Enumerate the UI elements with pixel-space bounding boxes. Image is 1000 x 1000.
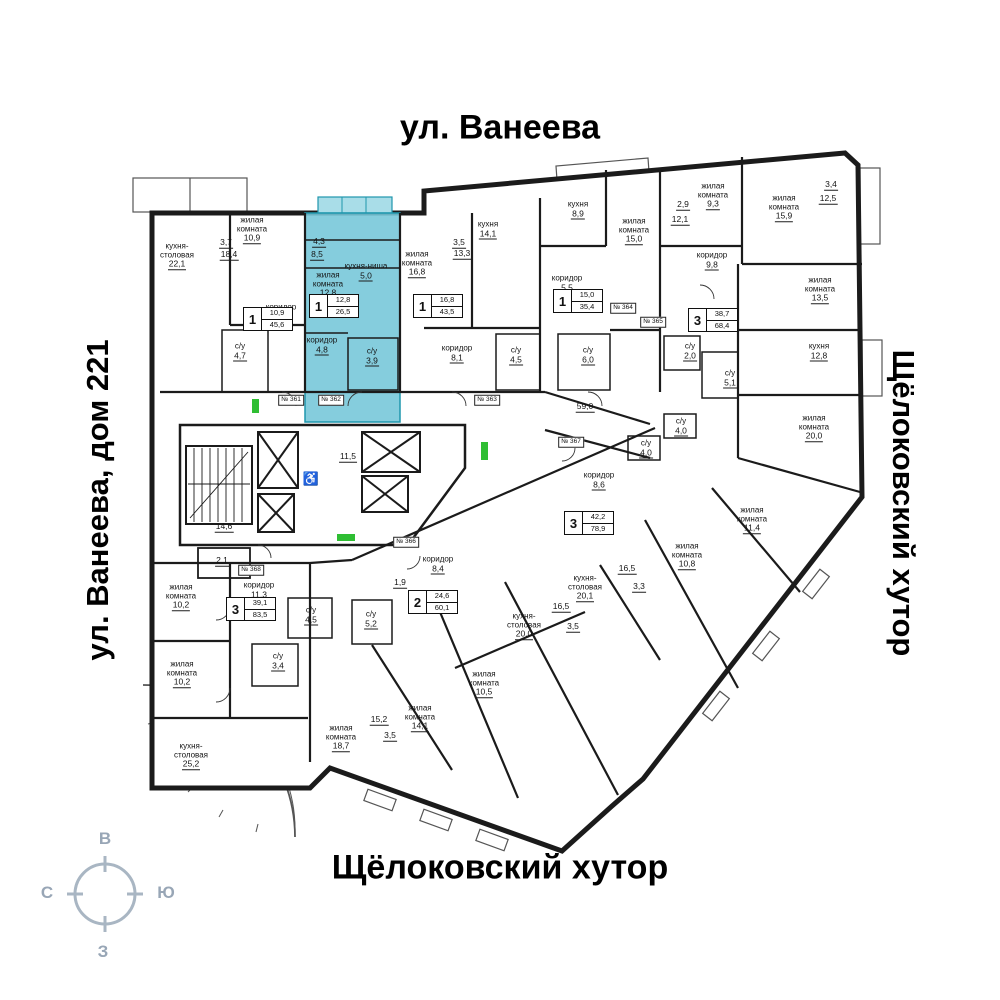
room-area: 18,4 [220,250,239,261]
room-area: 8,6 [592,480,606,491]
room-label: жилая комната16,8 [402,250,432,278]
rooms-count: 3 [227,598,245,620]
apartment-number-tag: № 362 [318,395,344,406]
room-label: 12,5 [819,194,838,205]
apartment-number-tag: № 363 [474,395,500,406]
room-label: кухня- столовая22,1 [160,242,194,270]
room-name: кухня- столовая [568,574,602,591]
room-name: жилая комната [737,506,767,523]
compass-west: З [98,942,109,962]
living-area: 42,2 [583,512,613,524]
room-area: 11,5 [339,452,357,463]
room-area: 4,0 [674,426,688,437]
room-label: с/у3,4 [271,653,285,672]
room-area: 11,4 [743,523,761,534]
total-area: 68,4 [707,321,737,332]
room-area: 8,5 [310,250,324,261]
total-area: 60,1 [427,603,457,614]
street-label-top: ул. Ванеева [400,109,600,148]
room-label: 3,5 [383,731,397,742]
room-label: коридор8,1 [442,345,473,364]
room-label: 18,4 [220,250,239,261]
room-label: 12,1 [671,215,690,226]
room-label: с/у2,0 [683,343,697,362]
room-name: кухня- столовая [507,612,541,629]
apartment-badge[interactable]: 115,035,4 [553,289,603,313]
room-name: кухня- столовая [174,742,208,759]
room-label: жилая комната11,4 [737,506,767,534]
living-area: 39,1 [245,598,275,610]
apartment-badge[interactable]: 338,768,4 [688,308,738,332]
room-area: 13,3 [453,249,472,260]
room-label: жилая комната13,5 [805,276,835,304]
room-label: кухня- столовая20,1 [568,574,602,602]
room-area: 5,1 [723,378,737,389]
apartment-badge[interactable]: 110,945,6 [243,307,293,331]
room-label: 3,7 [219,238,233,249]
room-name: жилая комната [619,217,649,234]
room-area: 59,0 [576,402,595,413]
room-label: с/у4,0 [674,418,688,437]
apartment-badge[interactable]: 224,660,1 [408,590,458,614]
room-area: 4,5 [304,615,318,626]
room-area: 20,0 [805,431,824,442]
apartment-badge[interactable]: 342,278,9 [564,511,614,535]
room-area: 3,3 [632,582,646,593]
room-label: 13,3 [453,249,472,260]
room-area: 3,9 [365,356,379,367]
room-area: 16,5 [552,602,571,613]
room-area: 12,8 [810,351,829,362]
rooms-count: 1 [554,290,572,312]
room-area: 2,0 [683,351,697,362]
badge-areas: 42,278,9 [583,512,613,534]
room-label: 16,5 [552,602,571,613]
room-label: жилая комната10,2 [167,660,197,688]
room-area: 9,3 [706,199,720,210]
apartment-number-tag: № 361 [278,395,304,406]
badge-areas: 12,826,5 [328,295,358,317]
apartment-number-tag: № 364 [610,303,636,314]
room-name: жилая комната [313,271,343,288]
room-label: 14,6 [215,522,234,533]
room-label: с/у6,0 [581,347,595,366]
room-name: жилая комната [672,542,702,559]
room-label: с/у5,1 [723,370,737,389]
room-label: с/у3,9 [365,348,379,367]
room-area: 6,0 [581,355,595,366]
apartment-number-tag: № 366 [393,537,419,548]
badge-areas: 38,768,4 [707,309,737,331]
room-name: кухня- столовая [160,242,194,259]
room-label: жилая комната10,9 [237,216,267,244]
room-area: 16,8 [408,267,427,278]
living-area: 16,8 [432,295,462,307]
room-label: жилая комната10,2 [166,583,196,611]
room-name: жилая комната [799,414,829,431]
room-label: жилая комната10,8 [672,542,702,570]
street-label-left: ул. Ванеева, дом 221 [80,339,116,660]
room-label: с/у4,5 [509,347,523,366]
room-area: 8,1 [450,353,464,364]
room-name: жилая комната [769,194,799,211]
room-label: 2,9 [676,200,690,211]
room-label: 4,3 [312,237,326,248]
room-label: с/у4,7 [233,343,247,362]
total-area: 43,5 [432,307,462,318]
room-area: 10,9 [243,233,262,244]
room-label: жилая комната20,0 [799,414,829,442]
badge-areas: 10,945,6 [262,308,292,330]
room-area: 5,0 [359,271,373,282]
rooms-count: 2 [409,591,427,613]
room-label: коридор8,4 [423,556,454,575]
apartment-badge[interactable]: 339,183,5 [226,597,276,621]
wheelchair-icon: ♿ [303,471,319,487]
compass-north: С [41,883,53,903]
living-area: 15,0 [572,290,602,302]
room-name: жилая комната [698,182,728,199]
room-area: 2,9 [676,200,690,211]
room-area: 4,7 [233,351,247,362]
living-area: 24,6 [427,591,457,603]
compass-south: Ю [157,883,175,903]
room-area: 14,6 [215,522,234,533]
room-name: жилая комната [166,583,196,600]
room-label: коридор9,8 [697,252,728,271]
room-area: 10,8 [678,559,697,570]
room-label: 8,5 [310,250,324,261]
room-area: 3,5 [452,238,466,249]
room-label: жилая комната15,9 [769,194,799,222]
room-label: жилая комната10,5 [469,670,499,698]
room-label: 59,0 [576,402,595,413]
room-area: 2,1 [215,556,229,567]
rooms-count: 3 [689,309,707,331]
rooms-count: 1 [244,308,262,330]
room-area: 14,1 [479,229,498,240]
apartment-badge[interactable]: 116,843,5 [413,294,463,318]
room-label: жилая комната9,3 [698,182,728,210]
room-name: жилая комната [402,250,432,267]
badge-areas: 15,035,4 [572,290,602,312]
room-area: 25,2 [182,759,201,770]
room-area: 15,9 [775,211,794,222]
room-name: жилая комната [805,276,835,293]
rooms-count: 3 [565,512,583,534]
living-area: 12,8 [328,295,358,307]
total-area: 83,5 [245,610,275,621]
apartment-number-tag: № 367 [558,437,584,448]
room-label: кухня12,8 [809,343,829,362]
rooms-count: 1 [310,295,328,317]
room-area: 10,2 [172,600,191,611]
room-name: жилая комната [326,724,356,741]
room-name: жилая комната [405,704,435,721]
apartment-number-tag: № 368 [238,565,264,576]
room-area: 12,1 [671,215,690,226]
area-label-right: Щёлоковский хутор [885,350,921,657]
room-area: 3,4 [824,180,838,191]
room-label: кухня14,1 [478,221,498,240]
room-label: 15,2 [370,715,389,726]
room-label: жилая комната18,7 [326,724,356,752]
room-area: 3,5 [566,622,580,633]
room-label: с/у4,5 [304,607,318,626]
floor-plan-page: ул. Ванеева ул. Ванеева, дом 221 Щёлоков… [0,0,1000,1000]
room-label: кухня-ниша5,0 [345,263,388,282]
room-area: 15,2 [370,715,389,726]
room-label: коридор8,6 [584,472,615,491]
room-label: 3,3 [632,582,646,593]
badge-areas: 24,660,1 [427,591,457,613]
room-label: 2,1 [215,556,229,567]
room-name: жилая комната [167,660,197,677]
apartment-number-tag: № 365 [640,317,666,328]
room-label: с/у4,0 [639,440,653,459]
total-area: 78,9 [583,524,613,535]
room-area: 10,2 [173,677,192,688]
total-area: 35,4 [572,302,602,313]
room-label: 3,5 [566,622,580,633]
room-label: 3,5 [452,238,466,249]
room-area: 3,4 [271,661,285,672]
room-area: 4,3 [312,237,326,248]
compass: В С Ю З [35,822,180,967]
room-area: 8,4 [431,564,445,575]
room-area: 16,5 [618,564,637,575]
room-area: 20,1 [576,591,595,602]
living-area: 10,9 [262,308,292,320]
room-area: 4,8 [315,345,329,356]
room-label: кухня8,9 [568,201,588,220]
room-label: 3,4 [824,180,838,191]
rooms-count: 1 [414,295,432,317]
compass-east: В [99,829,111,849]
total-area: 26,5 [328,307,358,318]
badge-areas: 39,183,5 [245,598,275,620]
room-label: 16,5 [618,564,637,575]
total-area: 45,6 [262,320,292,331]
room-area: 9,8 [705,260,719,271]
living-area: 38,7 [707,309,737,321]
room-label: кухня- столовая20,0 [507,612,541,640]
room-area: 4,5 [509,355,523,366]
room-label: коридор4,8 [307,337,338,356]
room-area: 15,0 [625,234,644,245]
room-label: 1,9 [393,578,407,589]
room-label: жилая комната14,1 [405,704,435,732]
area-label-bottom: Щёлоковский хутор [332,849,668,888]
room-label: с/у5,2 [364,611,378,630]
room-name: жилая комната [469,670,499,687]
room-label: кухня- столовая25,2 [174,742,208,770]
room-label: 11,5 [339,452,357,463]
room-area: 14,1 [411,721,430,732]
room-label: жилая комната15,0 [619,217,649,245]
room-area: 13,5 [811,293,830,304]
room-area: 18,7 [332,741,351,752]
apartment-badge[interactable]: 112,826,5 [309,294,359,318]
room-area: 3,7 [219,238,233,249]
room-name: жилая комната [237,216,267,233]
room-area: 12,5 [819,194,838,205]
room-area: 22,1 [168,259,187,270]
room-area: 1,9 [393,578,407,589]
badge-areas: 16,843,5 [432,295,462,317]
room-area: 8,9 [571,209,585,220]
room-area: 20,0 [515,629,534,640]
room-area: 3,5 [383,731,397,742]
room-area: 10,5 [475,687,494,698]
room-area: 4,0 [639,448,653,459]
room-area: 5,2 [364,619,378,630]
